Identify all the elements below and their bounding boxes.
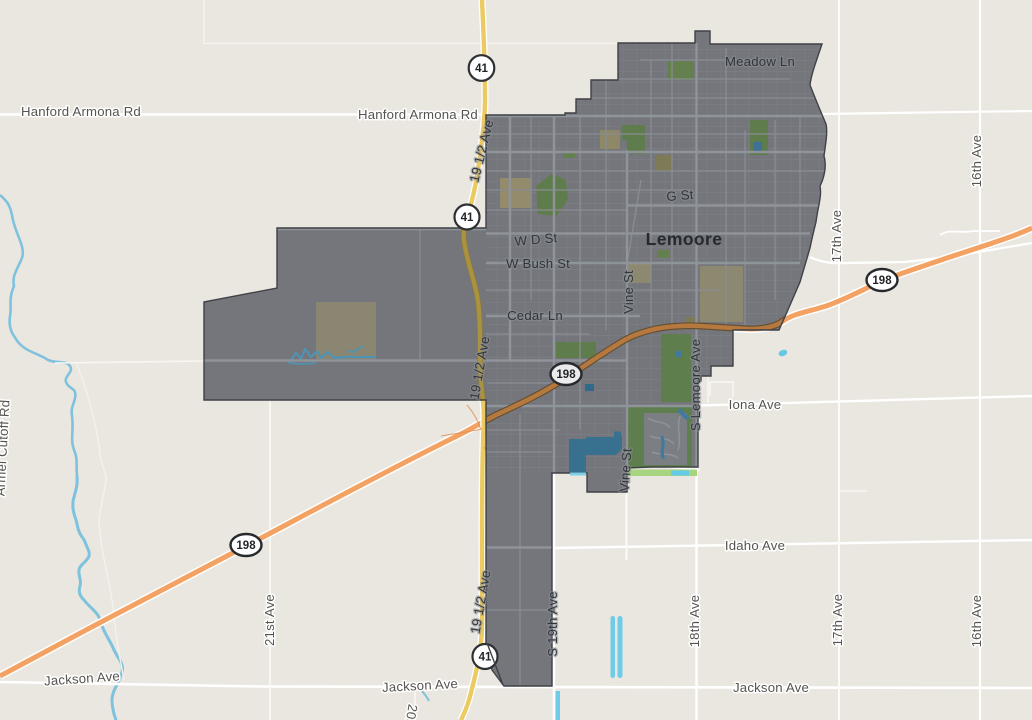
svg-text:Iona Ave: Iona Ave bbox=[729, 397, 782, 412]
svg-text:Jackson Ave: Jackson Ave bbox=[733, 680, 809, 695]
svg-text:17th Ave: 17th Ave bbox=[829, 210, 844, 263]
svg-text:21st Ave: 21st Ave bbox=[262, 594, 277, 646]
svg-text:16th Ave: 16th Ave bbox=[969, 135, 984, 188]
svg-text:41: 41 bbox=[475, 63, 488, 75]
svg-text:Hanford Armona Rd: Hanford Armona Rd bbox=[21, 104, 141, 119]
svg-text:Hanford Armona Rd: Hanford Armona Rd bbox=[358, 107, 478, 122]
svg-text:198: 198 bbox=[236, 540, 256, 552]
svg-text:16th Ave: 16th Ave bbox=[969, 595, 984, 648]
svg-text:Vine St: Vine St bbox=[616, 448, 634, 493]
svg-text:Lemoore: Lemoore bbox=[646, 229, 723, 249]
svg-text:18th Ave: 18th Ave bbox=[687, 595, 702, 648]
svg-text:W Bush St: W Bush St bbox=[506, 256, 570, 271]
svg-text:S Lemoore Ave: S Lemoore Ave bbox=[688, 339, 703, 432]
svg-text:198: 198 bbox=[872, 275, 892, 287]
svg-text:Vine St: Vine St bbox=[621, 270, 636, 314]
svg-text:Meadow Ln: Meadow Ln bbox=[725, 54, 795, 69]
svg-text:198: 198 bbox=[556, 369, 576, 381]
svg-text:Cedar Ln: Cedar Ln bbox=[507, 308, 563, 323]
svg-text:17th Ave: 17th Ave bbox=[830, 594, 845, 647]
svg-text:G St: G St bbox=[666, 187, 695, 204]
svg-text:Idaho Ave: Idaho Ave bbox=[725, 538, 785, 553]
svg-text:S 19th Ave: S 19th Ave bbox=[545, 591, 560, 657]
svg-text:41: 41 bbox=[461, 212, 474, 224]
svg-text:41: 41 bbox=[479, 652, 492, 664]
